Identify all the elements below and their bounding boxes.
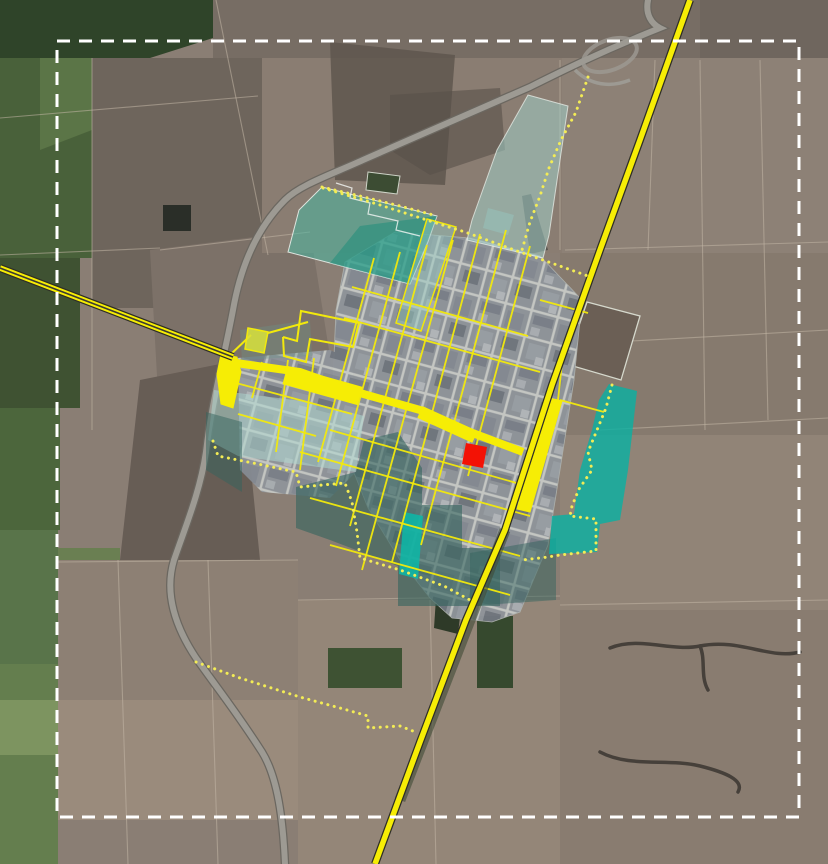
- farmhouse-parcel: [366, 172, 400, 194]
- highlight-marker-red-square: [462, 443, 487, 468]
- parcel-green-c1: [328, 648, 402, 688]
- field-green-left5: [0, 664, 58, 864]
- pond-dark: [163, 205, 191, 231]
- field-ne: [560, 58, 828, 253]
- map-feature-layers: [0, 0, 828, 864]
- field-green-left5b: [0, 700, 58, 755]
- parcel-green-c2: [477, 616, 513, 688]
- satellite-map[interactable]: [0, 0, 828, 864]
- field-green-left4: [0, 530, 58, 664]
- field-green-left3: [0, 408, 60, 530]
- field-br-low: [560, 600, 828, 864]
- map-viewport[interactable]: [0, 0, 828, 864]
- lime-patch: [245, 328, 268, 353]
